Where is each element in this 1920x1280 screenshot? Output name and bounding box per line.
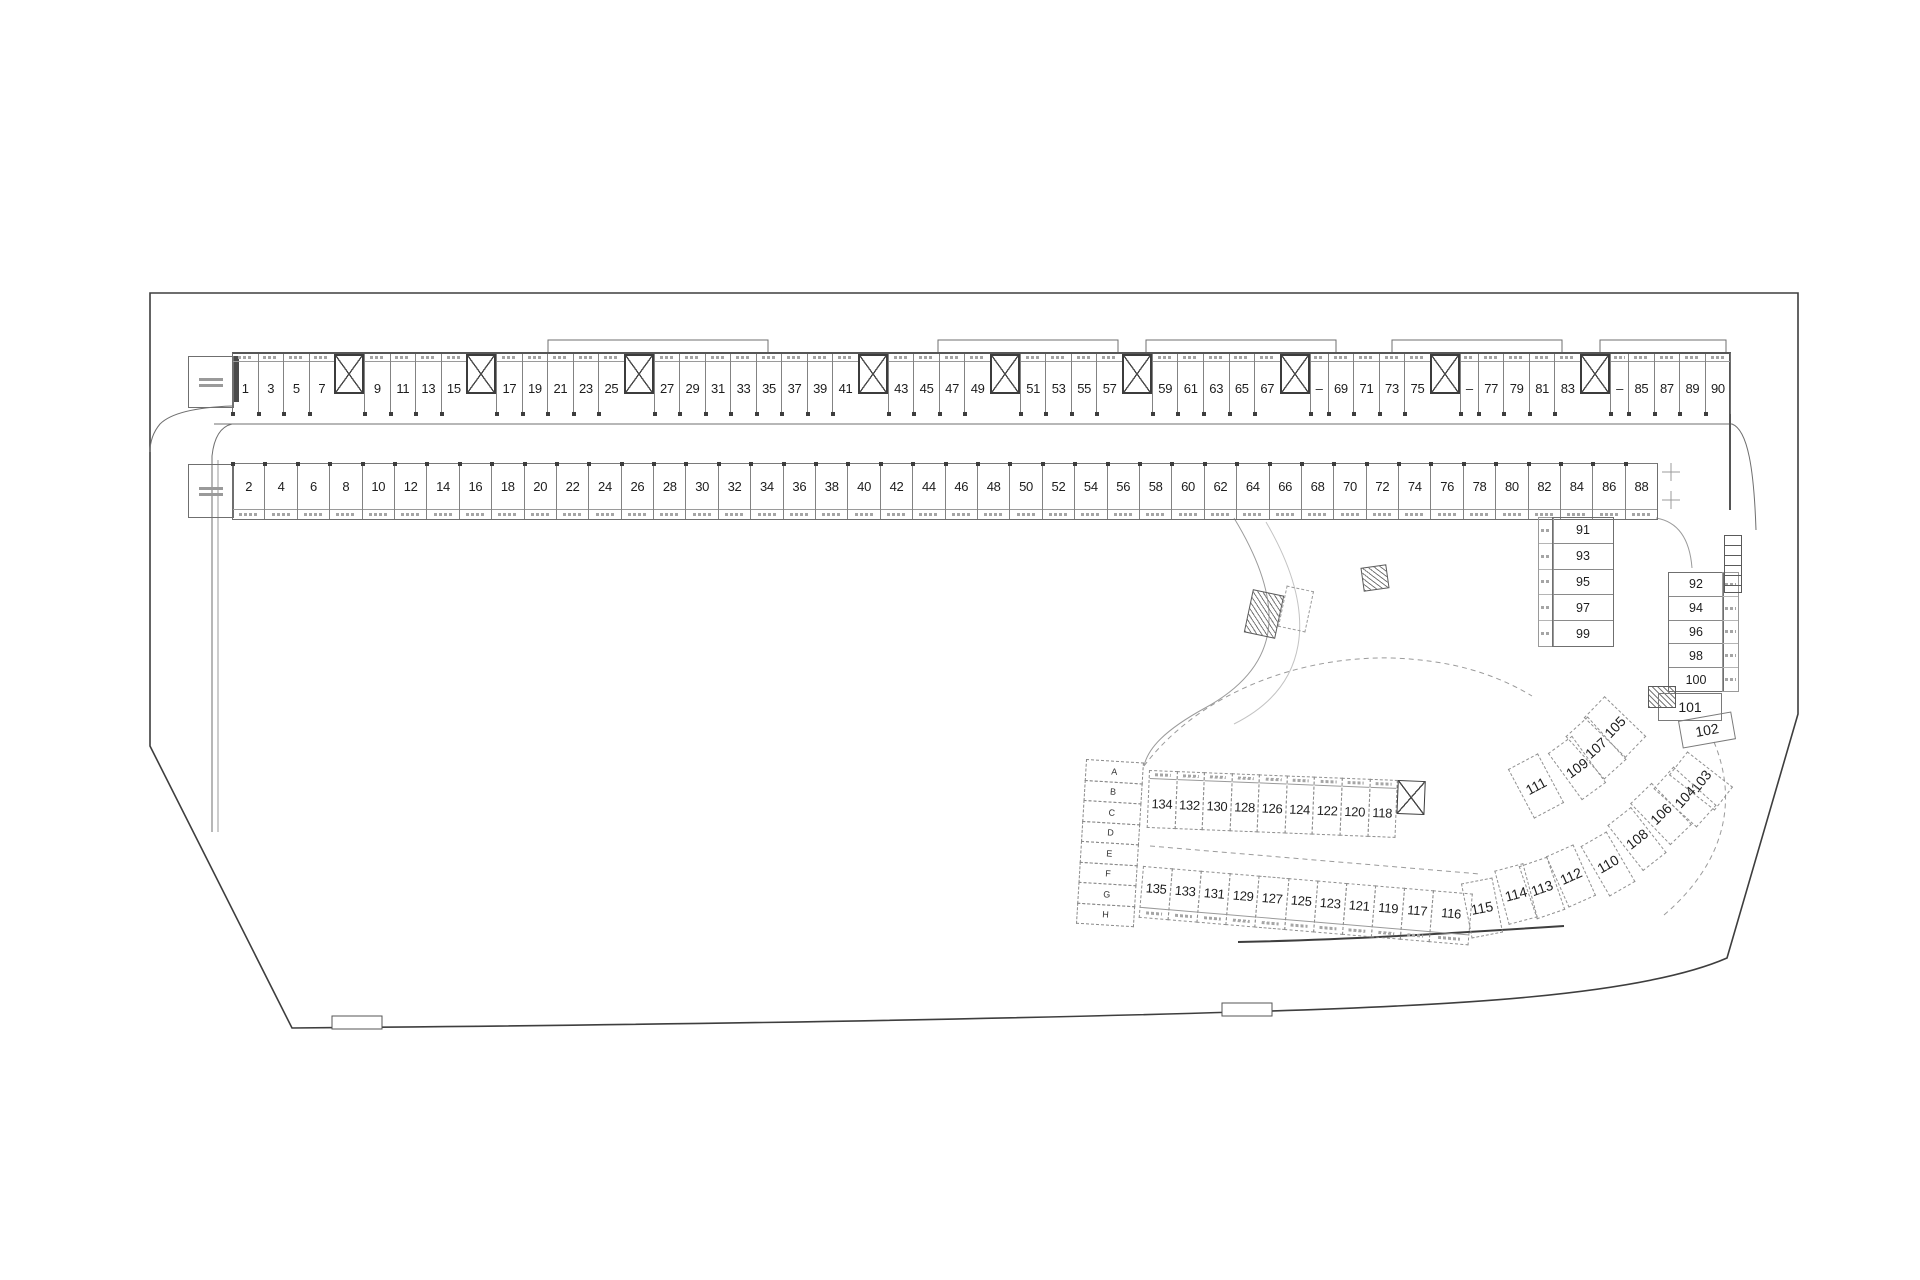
stall-tag-mark (822, 513, 841, 516)
stall-tag-mark (736, 356, 751, 359)
parking-stall-22: 22 (556, 464, 588, 519)
corner-dot (780, 412, 784, 416)
utility-room (188, 356, 234, 408)
stall-number: 84 (1561, 464, 1592, 509)
stall-tag-mark (1373, 513, 1392, 516)
parking-stall-84: 84 (1560, 464, 1592, 519)
parking-stall-76: 76 (1430, 464, 1462, 519)
stall-tag (940, 354, 965, 362)
parking-stall-62: 62 (1204, 464, 1236, 519)
stall-number: 55 (1072, 362, 1097, 414)
parking-stall-18: 18 (491, 464, 523, 519)
stall-number: 6 (298, 464, 329, 509)
stall-number: 117 (1402, 889, 1433, 931)
stall-tag (1539, 621, 1553, 646)
corner-dot (257, 412, 261, 416)
stall-tag-mark (314, 356, 329, 359)
stall-tag-mark (1026, 356, 1041, 359)
stall-tag-mark (838, 356, 853, 359)
stall-tag-mark (894, 356, 909, 359)
parking-stall-73: 73 (1379, 354, 1405, 414)
corner-dot (704, 412, 708, 416)
stall-number: 22 (557, 464, 588, 509)
corner-dot (653, 412, 657, 416)
stall-tag-mark (1179, 513, 1198, 516)
stall-tag (1010, 509, 1041, 519)
stall-tag-mark (289, 356, 304, 359)
parking-stall-59: 59 (1152, 354, 1178, 414)
stall-tag-mark (498, 513, 517, 516)
stall-tag-mark (855, 513, 874, 516)
parking-stall-56: 56 (1107, 464, 1139, 519)
stall-number: 63 (1204, 362, 1229, 414)
parking-stall-2: 2 (233, 464, 264, 519)
stall-tag-mark (1614, 356, 1624, 359)
corner-dot (879, 462, 883, 466)
stall-tag-mark (685, 356, 700, 359)
stall-tag-mark (1211, 513, 1230, 516)
parking-stall-58: 58 (1139, 464, 1171, 519)
corner-dot (1591, 462, 1595, 466)
parking-stall-41: 41 (832, 354, 858, 414)
parking-stall-88: 88 (1625, 464, 1657, 519)
stall-number: 70 (1334, 464, 1365, 509)
corner-dot (1477, 412, 1481, 416)
stall-tag (1140, 509, 1171, 519)
stall-number: 43 (889, 362, 914, 414)
stall-tag (416, 354, 441, 362)
stall-number: 36 (784, 464, 815, 509)
stall-number: 109 (1563, 755, 1591, 782)
stall-tag (848, 509, 879, 519)
parking-stall-38: 38 (815, 464, 847, 519)
stall-number: 12 (395, 464, 426, 509)
corner-dot (490, 462, 494, 466)
stall-number: 88 (1626, 464, 1657, 509)
corner-dot (1462, 462, 1466, 466)
stall-tag (1075, 509, 1106, 519)
stall-tag-mark (1464, 356, 1474, 359)
stall-number: 27 (655, 362, 680, 414)
parking-stall-10: 10 (362, 464, 394, 519)
stack-91-99: 9193959799 (1552, 517, 1614, 647)
stall-number: 16 (460, 464, 491, 509)
stair-core-x-icon (1280, 354, 1310, 394)
stall-tag-mark (1114, 513, 1133, 516)
stall-tag (655, 354, 680, 362)
parking-stall-34: 34 (750, 464, 782, 519)
illegible-label-mark (199, 493, 223, 496)
stall-tag (1343, 924, 1372, 936)
parking-stall-98: 98 (1669, 644, 1723, 668)
stall-tag-mark (1175, 914, 1192, 918)
stall-tag (881, 509, 912, 519)
corner-dot (1019, 412, 1023, 416)
stall-number: 78 (1464, 464, 1495, 509)
parking-stall-61: 61 (1177, 354, 1203, 414)
corner-dot (296, 462, 300, 466)
illegible-label-mark (199, 487, 223, 490)
corner-dot (458, 462, 462, 466)
stall-tag (757, 354, 782, 362)
stall-tag (1072, 354, 1097, 362)
floor-plan-canvas: 1357911131517192123252729313335373941434… (0, 0, 1920, 1280)
stall-tag (946, 509, 977, 519)
parking-stall-35: 35 (756, 354, 782, 414)
corner-dot (963, 412, 967, 416)
corner-dot (912, 412, 916, 416)
stall-number: 58 (1140, 464, 1171, 509)
stall-number: 74 (1399, 464, 1430, 509)
stall-tag (589, 509, 620, 519)
corner-dot (425, 462, 429, 466)
corner-dot (1170, 462, 1174, 466)
stall-tag-mark (336, 513, 355, 516)
stall-tag (751, 509, 782, 519)
parking-stall-83: 83 (1554, 354, 1580, 414)
parking-stall-94: 94 (1669, 597, 1723, 621)
stair-core-x-icon (466, 354, 496, 394)
stall-tag (1461, 354, 1478, 362)
stall-number: 17 (497, 362, 522, 414)
stall-number: 20 (525, 464, 556, 509)
stall-tag-mark (1725, 607, 1736, 610)
stall-tag-mark (1484, 356, 1499, 359)
stall-tag (1153, 354, 1178, 362)
stall-number: 85 (1629, 362, 1654, 414)
stall-tag (1270, 509, 1301, 519)
stall-number: 15 (442, 362, 467, 414)
corner-dot (231, 412, 235, 416)
stall-tag (1680, 354, 1705, 362)
stall-number: 124 (1285, 785, 1313, 834)
stall-number: 73 (1380, 362, 1405, 414)
corner-dot (414, 412, 418, 416)
corner-dot (1528, 412, 1532, 416)
stall-tag (1172, 509, 1203, 519)
stall-tag (1723, 597, 1738, 621)
stall-tag (1043, 509, 1074, 519)
corner-dot (1138, 462, 1142, 466)
parking-stall-reserved: – (1610, 354, 1628, 414)
parking-stall-64: 64 (1236, 464, 1268, 519)
stair-core-x-icon (1122, 354, 1152, 394)
stall-tag (1401, 929, 1430, 941)
stall-number: 83 (1555, 362, 1580, 414)
parking-stall-40: 40 (847, 464, 879, 519)
stall-tag-mark (1375, 782, 1391, 786)
corner-dot (1704, 412, 1708, 416)
corner-dot (1397, 462, 1401, 466)
stall-tag (599, 354, 624, 362)
stall-tag (1539, 570, 1553, 596)
stall-tag (784, 509, 815, 519)
stall-number: 50 (1010, 464, 1041, 509)
parking-stall-87: 87 (1654, 354, 1680, 414)
parking-stall-118: 118 (1367, 779, 1398, 838)
stall-number: 86 (1593, 464, 1624, 509)
parking-stall-36: 36 (783, 464, 815, 519)
parking-stall-70: 70 (1333, 464, 1365, 519)
corner-dot (1459, 412, 1463, 416)
parking-stall-7: 7 (309, 354, 335, 414)
stall-tag-mark (596, 513, 615, 516)
stall-tag (1479, 354, 1504, 362)
stall-tag (913, 509, 944, 519)
block-upper-row: 134132130128126124122120118 (1148, 770, 1426, 839)
stall-tag (557, 509, 588, 519)
stall-tag-mark (660, 356, 675, 359)
top-stall-row: 1357911131517192123252729313335373941434… (232, 352, 1731, 414)
stall-number: 48 (978, 464, 1009, 509)
corner-dot (328, 462, 332, 466)
stall-tag-mark (1146, 911, 1163, 915)
stall-number: 41 (833, 362, 858, 414)
stall-tag-mark (1535, 356, 1550, 359)
stall-tag-mark (1685, 356, 1700, 359)
corner-dot (555, 462, 559, 466)
stall-tag-mark (887, 513, 906, 516)
parking-stall-74: 74 (1398, 464, 1430, 519)
parking-stall-16: 16 (459, 464, 491, 519)
parking-stall-5: 5 (283, 354, 309, 414)
stall-number: 34 (751, 464, 782, 509)
corner-dot (1070, 412, 1074, 416)
stall-number: 75 (1405, 362, 1430, 414)
parking-stall-132: 132 (1174, 771, 1205, 830)
corner-dot (717, 462, 721, 466)
corner-dot (755, 412, 759, 416)
parking-stall-31: 31 (705, 354, 731, 414)
stall-tag-mark (1308, 513, 1327, 516)
plan-linework (0, 0, 1920, 1280)
parking-stall-52: 52 (1042, 464, 1074, 519)
parking-stall-71: 71 (1353, 354, 1379, 414)
stall-tag (686, 509, 717, 519)
stall-tag-mark (1349, 928, 1366, 932)
stall-tag-mark (1210, 775, 1226, 779)
stall-tag-mark (1503, 513, 1522, 516)
stall-tag-mark (563, 513, 582, 516)
stall-number: 87 (1655, 362, 1680, 414)
stall-tag (1230, 354, 1255, 362)
corner-dot (887, 412, 891, 416)
stall-tag-mark (1209, 356, 1224, 359)
stall-number: 35 (757, 362, 782, 414)
stall-number: 23 (574, 362, 599, 414)
stall-tag-mark (1470, 513, 1489, 516)
stall-tag-mark (1438, 936, 1461, 941)
stall-tag (1237, 509, 1268, 519)
stall-number: 129 (1228, 874, 1259, 916)
stall-tag (460, 509, 491, 519)
stall-tag-mark (1291, 923, 1308, 927)
parking-stall-3: 3 (258, 354, 284, 414)
stall-number: 120 (1340, 787, 1368, 836)
stall-tag-mark (304, 513, 323, 516)
stall-number: 32 (719, 464, 750, 509)
stair-core-x-icon (334, 354, 364, 394)
stall-number: 10 (363, 464, 394, 509)
stall-number: 127 (1257, 877, 1288, 919)
parking-stall-65: 65 (1229, 354, 1255, 414)
parking-stall-43: 43 (888, 354, 914, 414)
stall-number: 82 (1529, 464, 1560, 509)
stall-tag-mark (1262, 921, 1279, 925)
stall-tag-mark (1183, 356, 1198, 359)
stall-tag (1329, 354, 1354, 362)
corner-dot (1527, 462, 1531, 466)
stall-tag-mark (434, 513, 453, 516)
stall-tag-mark (579, 356, 594, 359)
stall-tag-mark (1146, 513, 1165, 516)
stall-tag (1405, 354, 1430, 362)
stall-tag (1314, 921, 1343, 933)
stall-tag-mark (1407, 933, 1424, 937)
stall-number: 112 (1558, 864, 1585, 888)
stall-number: 33 (731, 362, 756, 414)
corner-dot (1268, 462, 1272, 466)
stall-number: 126 (1258, 783, 1286, 832)
stall-number: 37 (782, 362, 807, 414)
corner-dot (1678, 412, 1682, 416)
stall-number: 66 (1270, 464, 1301, 509)
parking-stall-14: 14 (426, 464, 458, 519)
corner-dot (546, 412, 550, 416)
corner-dot (1041, 462, 1045, 466)
stall-tag (816, 509, 847, 519)
stall-tag-mark (238, 356, 253, 359)
stall-tag-mark (604, 356, 619, 359)
stall-number: 65 (1230, 362, 1255, 414)
stall-number: 2 (233, 464, 264, 509)
stall-number: 28 (654, 464, 685, 509)
stall-number: 119 (1373, 886, 1404, 928)
corner-dot (440, 412, 444, 416)
stall-tag-mark (1320, 780, 1336, 784)
corner-dot (1653, 412, 1657, 416)
stall-number: 18 (492, 464, 523, 509)
zone-letter-H: H (1076, 902, 1135, 927)
stall-tag-mark (1238, 777, 1254, 781)
bottom-stall-row: 2468101214161820222426283032343638404244… (232, 463, 1658, 520)
stall-number: 101 (1678, 699, 1701, 715)
stall-number: 45 (914, 362, 939, 414)
stall-tag-mark (1541, 606, 1551, 609)
stall-tag (1431, 509, 1462, 519)
stall-tag-mark (1334, 356, 1349, 359)
illegible-label-mark (199, 384, 223, 387)
parking-stall-39: 39 (807, 354, 833, 414)
stall-tag-mark (239, 513, 258, 516)
stall-number: 56 (1108, 464, 1139, 509)
stall-tag-mark (945, 356, 960, 359)
stall-number: 106 (1647, 800, 1675, 828)
stall-number: 72 (1367, 464, 1398, 509)
parking-stall-95: 95 (1553, 570, 1613, 596)
stall-tag (1205, 509, 1236, 519)
stall-number: 135 (1141, 867, 1172, 909)
stall-number: 30 (686, 464, 717, 509)
stall-number: 13 (416, 362, 441, 414)
stall-number: 123 (1315, 882, 1346, 924)
stall-tag-mark (628, 513, 647, 516)
stall-tag (330, 509, 361, 519)
corner-dot (831, 412, 835, 416)
stall-tag (310, 354, 335, 362)
parking-stall-9: 9 (364, 354, 390, 414)
corner-dot (1176, 412, 1180, 416)
parking-stall-30: 30 (685, 464, 717, 519)
stall-tag-mark (1711, 356, 1726, 359)
stall-tag (1198, 912, 1227, 924)
stall-number: 46 (946, 464, 977, 509)
parking-stall-72: 72 (1366, 464, 1398, 519)
stall-tag (1629, 354, 1654, 362)
stall-number: 115 (1470, 898, 1495, 918)
corner-dot (749, 462, 753, 466)
stair-core-x-icon (1430, 354, 1460, 394)
stall-tag-mark (1438, 513, 1457, 516)
stall-tag-mark (1276, 513, 1295, 516)
parking-stall-32: 32 (718, 464, 750, 519)
stall-tag (719, 509, 750, 519)
ramp-icon (1724, 535, 1742, 593)
stall-tag (1354, 354, 1379, 362)
stall-number: 125 (1286, 879, 1317, 921)
parking-stall-48: 48 (977, 464, 1009, 519)
parking-stall-reserved: – (1460, 354, 1478, 414)
corner-dot (1352, 412, 1356, 416)
stall-number: 69 (1329, 362, 1354, 414)
parking-stall-12: 12 (394, 464, 426, 519)
corner-dot (1106, 462, 1110, 466)
parking-stall-55: 55 (1071, 354, 1097, 414)
corner-dot (1365, 462, 1369, 466)
parking-stall-19: 19 (522, 354, 548, 414)
stall-number: 116 (1431, 891, 1472, 934)
parking-stall-86: 86 (1592, 464, 1624, 519)
stall-tag-mark (1535, 513, 1554, 516)
corner-dot (393, 462, 397, 466)
parking-stall-126: 126 (1257, 774, 1288, 833)
stall-tag-mark (1017, 513, 1036, 516)
utility-room (188, 464, 234, 518)
stall-tag-mark (1243, 513, 1262, 516)
parking-stall-66: 66 (1269, 464, 1301, 519)
parking-stall-51: 51 (1020, 354, 1046, 414)
stall-tag (497, 354, 522, 362)
parking-stall-81: 81 (1529, 354, 1555, 414)
stall-tag-mark (711, 356, 726, 359)
stall-tag-mark (466, 513, 485, 516)
parking-stall-13: 13 (415, 354, 441, 414)
corner-dot (282, 412, 286, 416)
corner-dot (1203, 462, 1207, 466)
stall-tag-mark (1359, 356, 1374, 359)
stall-tag-mark (1293, 779, 1309, 783)
parking-stall-91: 91 (1553, 518, 1613, 544)
stall-tag-mark (813, 356, 828, 359)
stall-tag-mark (1314, 356, 1324, 359)
stall-tag-mark (1567, 513, 1586, 516)
corner-dot (938, 412, 942, 416)
stall-tag-mark (528, 356, 543, 359)
stall-tag (1169, 909, 1198, 921)
corner-dot (308, 412, 312, 416)
stall-tag-mark (395, 356, 410, 359)
corner-dot (1559, 462, 1563, 466)
